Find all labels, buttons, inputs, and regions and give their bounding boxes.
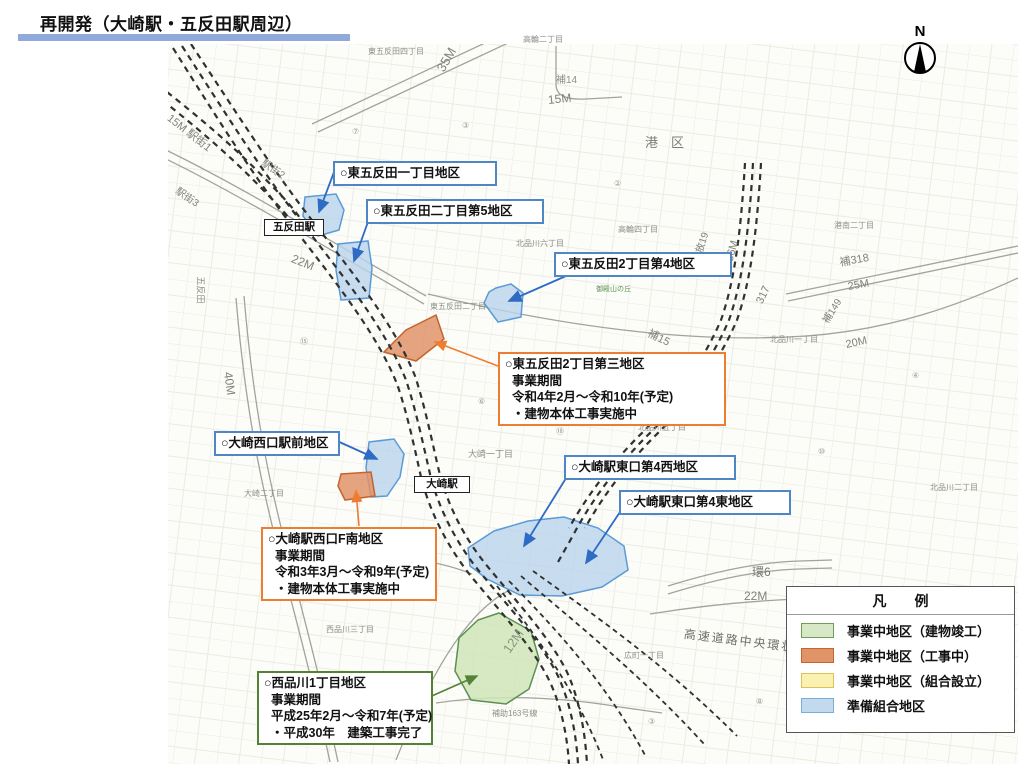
map-label-31: 22M — [744, 590, 767, 602]
legend-label-1: 事業中地区（工事中） — [847, 646, 977, 665]
map-label-7: 高輪四丁目 — [618, 226, 658, 234]
map-label-36: 広町一丁目 — [624, 652, 664, 660]
legend-swatch-2 — [801, 673, 834, 688]
legend-label-3: 準備組合地区 — [847, 696, 925, 715]
legend-swatch-0 — [801, 623, 834, 638]
compass-icon — [902, 39, 938, 75]
gotanda-station: 五反田駅 — [264, 219, 324, 236]
legend-item-0: 事業中地区（建物竣工） — [787, 618, 1014, 643]
map-label-0: 港 区 — [645, 136, 684, 149]
osaki-station: 大崎駅 — [414, 476, 470, 493]
map-label-35: 西品川三丁目 — [326, 626, 374, 634]
map-label-28: 東五反田二丁目 — [430, 303, 486, 311]
callout-osaki-east-4-west: ○大崎駅東口第4西地区 — [564, 455, 736, 480]
north-label: N — [898, 24, 942, 39]
callout-higashigotanda-2-4-line-0: ○東五反田2丁目第4地区 — [561, 256, 725, 273]
map-label-20: 北品川二丁目 — [930, 484, 978, 492]
map-label-41: ⑮ — [300, 338, 308, 346]
page-title: 再開発（大崎駅・五反田駅周辺） — [40, 10, 303, 35]
map-label-6: 港南二丁目 — [834, 222, 874, 230]
callout-nishishinagawa-1-line-1: 事業期間 — [264, 692, 426, 709]
map-label-45: ⑩ — [818, 448, 825, 456]
map-label-8: 北品川六丁目 — [516, 240, 564, 248]
legend-label-2: 事業中地区（組合設立） — [847, 671, 990, 690]
callout-osaki-west-f-south: ○大崎駅西口F南地区事業期間令和3年3月～令和9年(予定)・建物本体工事実施中 — [261, 527, 437, 601]
callout-higashigotanda-2-3: ○東五反田2丁目第三地区事業期間令和4年2月～令和10年(予定)・建物本体工事実… — [498, 352, 726, 426]
map-label-27: 40M — [222, 371, 237, 396]
callout-osaki-west-f-south-line-2: 令和3年3月～令和9年(予定) — [268, 564, 430, 581]
callout-higashigotanda-1: ○東五反田一丁目地区 — [333, 161, 497, 186]
callout-higashigotanda-2-4: ○東五反田2丁目第4地区 — [554, 252, 732, 277]
legend-item-1: 事業中地区（工事中） — [787, 643, 1014, 668]
map-label-2: 東五反田四丁目 — [368, 48, 424, 56]
map-label-29: 御殿山の丘 — [596, 286, 631, 293]
callout-nishishinagawa-1: ○西品川1丁目地区事業期間平成25年2月～令和7年(予定)・平成30年 建築工事… — [257, 671, 433, 745]
callout-higashigotanda-2-3-line-2: 令和4年2月～令和10年(予定) — [505, 389, 719, 406]
legend-title: 凡 例 — [787, 587, 1014, 615]
callout-nishishinagawa-1-line-3: ・平成30年 建築工事完了 — [264, 725, 426, 742]
map-label-21: 大崎二丁目 — [244, 490, 284, 498]
map-label-1: 高輪二丁目 — [523, 36, 563, 44]
callout-osaki-west-f-south-line-0: ○大崎駅西口F南地区 — [268, 531, 430, 548]
map-label-48: ③ — [648, 718, 655, 726]
legend-panel: 凡 例 事業中地区（建物竣工）事業中地区（工事中）事業中地区（組合設立）準備組合… — [786, 586, 1015, 733]
map-label-34: 補助163号線 — [492, 710, 537, 718]
map-label-17: 北品川一丁目 — [770, 336, 818, 344]
map-label-5: 15M — [547, 92, 571, 106]
legend-swatch-3 — [801, 698, 834, 713]
legend-item-3: 準備組合地区 — [787, 693, 1014, 718]
callout-nishishinagawa-1-line-0: ○西品川1丁目地区 — [264, 675, 426, 692]
map-label-30: 環6 — [752, 566, 771, 578]
compass-north-arrow: N — [898, 24, 942, 80]
map-label-26: 五反田 — [196, 277, 205, 304]
map-label-40: ② — [614, 180, 621, 188]
callout-osaki-west-ekimae-line-0: ○大崎西口駅前地区 — [221, 435, 333, 452]
page: 再開発（大崎駅・五反田駅周辺） — [0, 0, 1024, 768]
callout-higashigotanda-2-5-line-0: ○東五反田二丁目第5地区 — [373, 203, 537, 220]
map-label-43: ⑱ — [556, 428, 564, 436]
legend-label-0: 事業中地区（建物竣工） — [847, 621, 990, 640]
callout-osaki-east-4-west-line-0: ○大崎駅東口第4西地区 — [571, 459, 729, 476]
callout-higashigotanda-2-3-line-0: ○東五反田2丁目第三地区 — [505, 356, 719, 373]
callout-higashigotanda-2-3-line-3: ・建物本体工事実施中 — [505, 406, 719, 423]
callout-nishishinagawa-1-line-2: 平成25年2月～令和7年(予定) — [264, 708, 426, 725]
callout-higashigotanda-2-5: ○東五反田二丁目第5地区 — [366, 199, 544, 224]
callout-higashigotanda-2-3-line-1: 事業期間 — [505, 373, 719, 390]
callout-osaki-east-4-east: ○大崎駅東口第4東地区 — [619, 490, 791, 515]
map-label-46: ④ — [912, 372, 919, 380]
map-label-19: 大崎一丁目 — [468, 450, 513, 459]
legend-item-2: 事業中地区（組合設立） — [787, 668, 1014, 693]
map-label-38: ⑦ — [352, 128, 359, 136]
title-underline — [18, 34, 350, 41]
map-label-39: ③ — [462, 122, 469, 130]
legend-swatch-1 — [801, 648, 834, 663]
map-label-42: ⑥ — [478, 398, 485, 406]
callout-osaki-west-ekimae: ○大崎西口駅前地区 — [214, 431, 340, 456]
callout-osaki-east-4-east-line-0: ○大崎駅東口第4東地区 — [626, 494, 784, 511]
legend-rows: 事業中地区（建物竣工）事業中地区（工事中）事業中地区（組合設立）準備組合地区 — [787, 615, 1014, 718]
callout-osaki-west-f-south-line-3: ・建物本体工事実施中 — [268, 581, 430, 598]
map-label-49: ⑧ — [756, 698, 763, 706]
callout-higashigotanda-1-line-0: ○東五反田一丁目地区 — [340, 165, 490, 182]
map-label-4: 補14 — [556, 76, 577, 86]
callout-osaki-west-f-south-line-1: 事業期間 — [268, 548, 430, 565]
